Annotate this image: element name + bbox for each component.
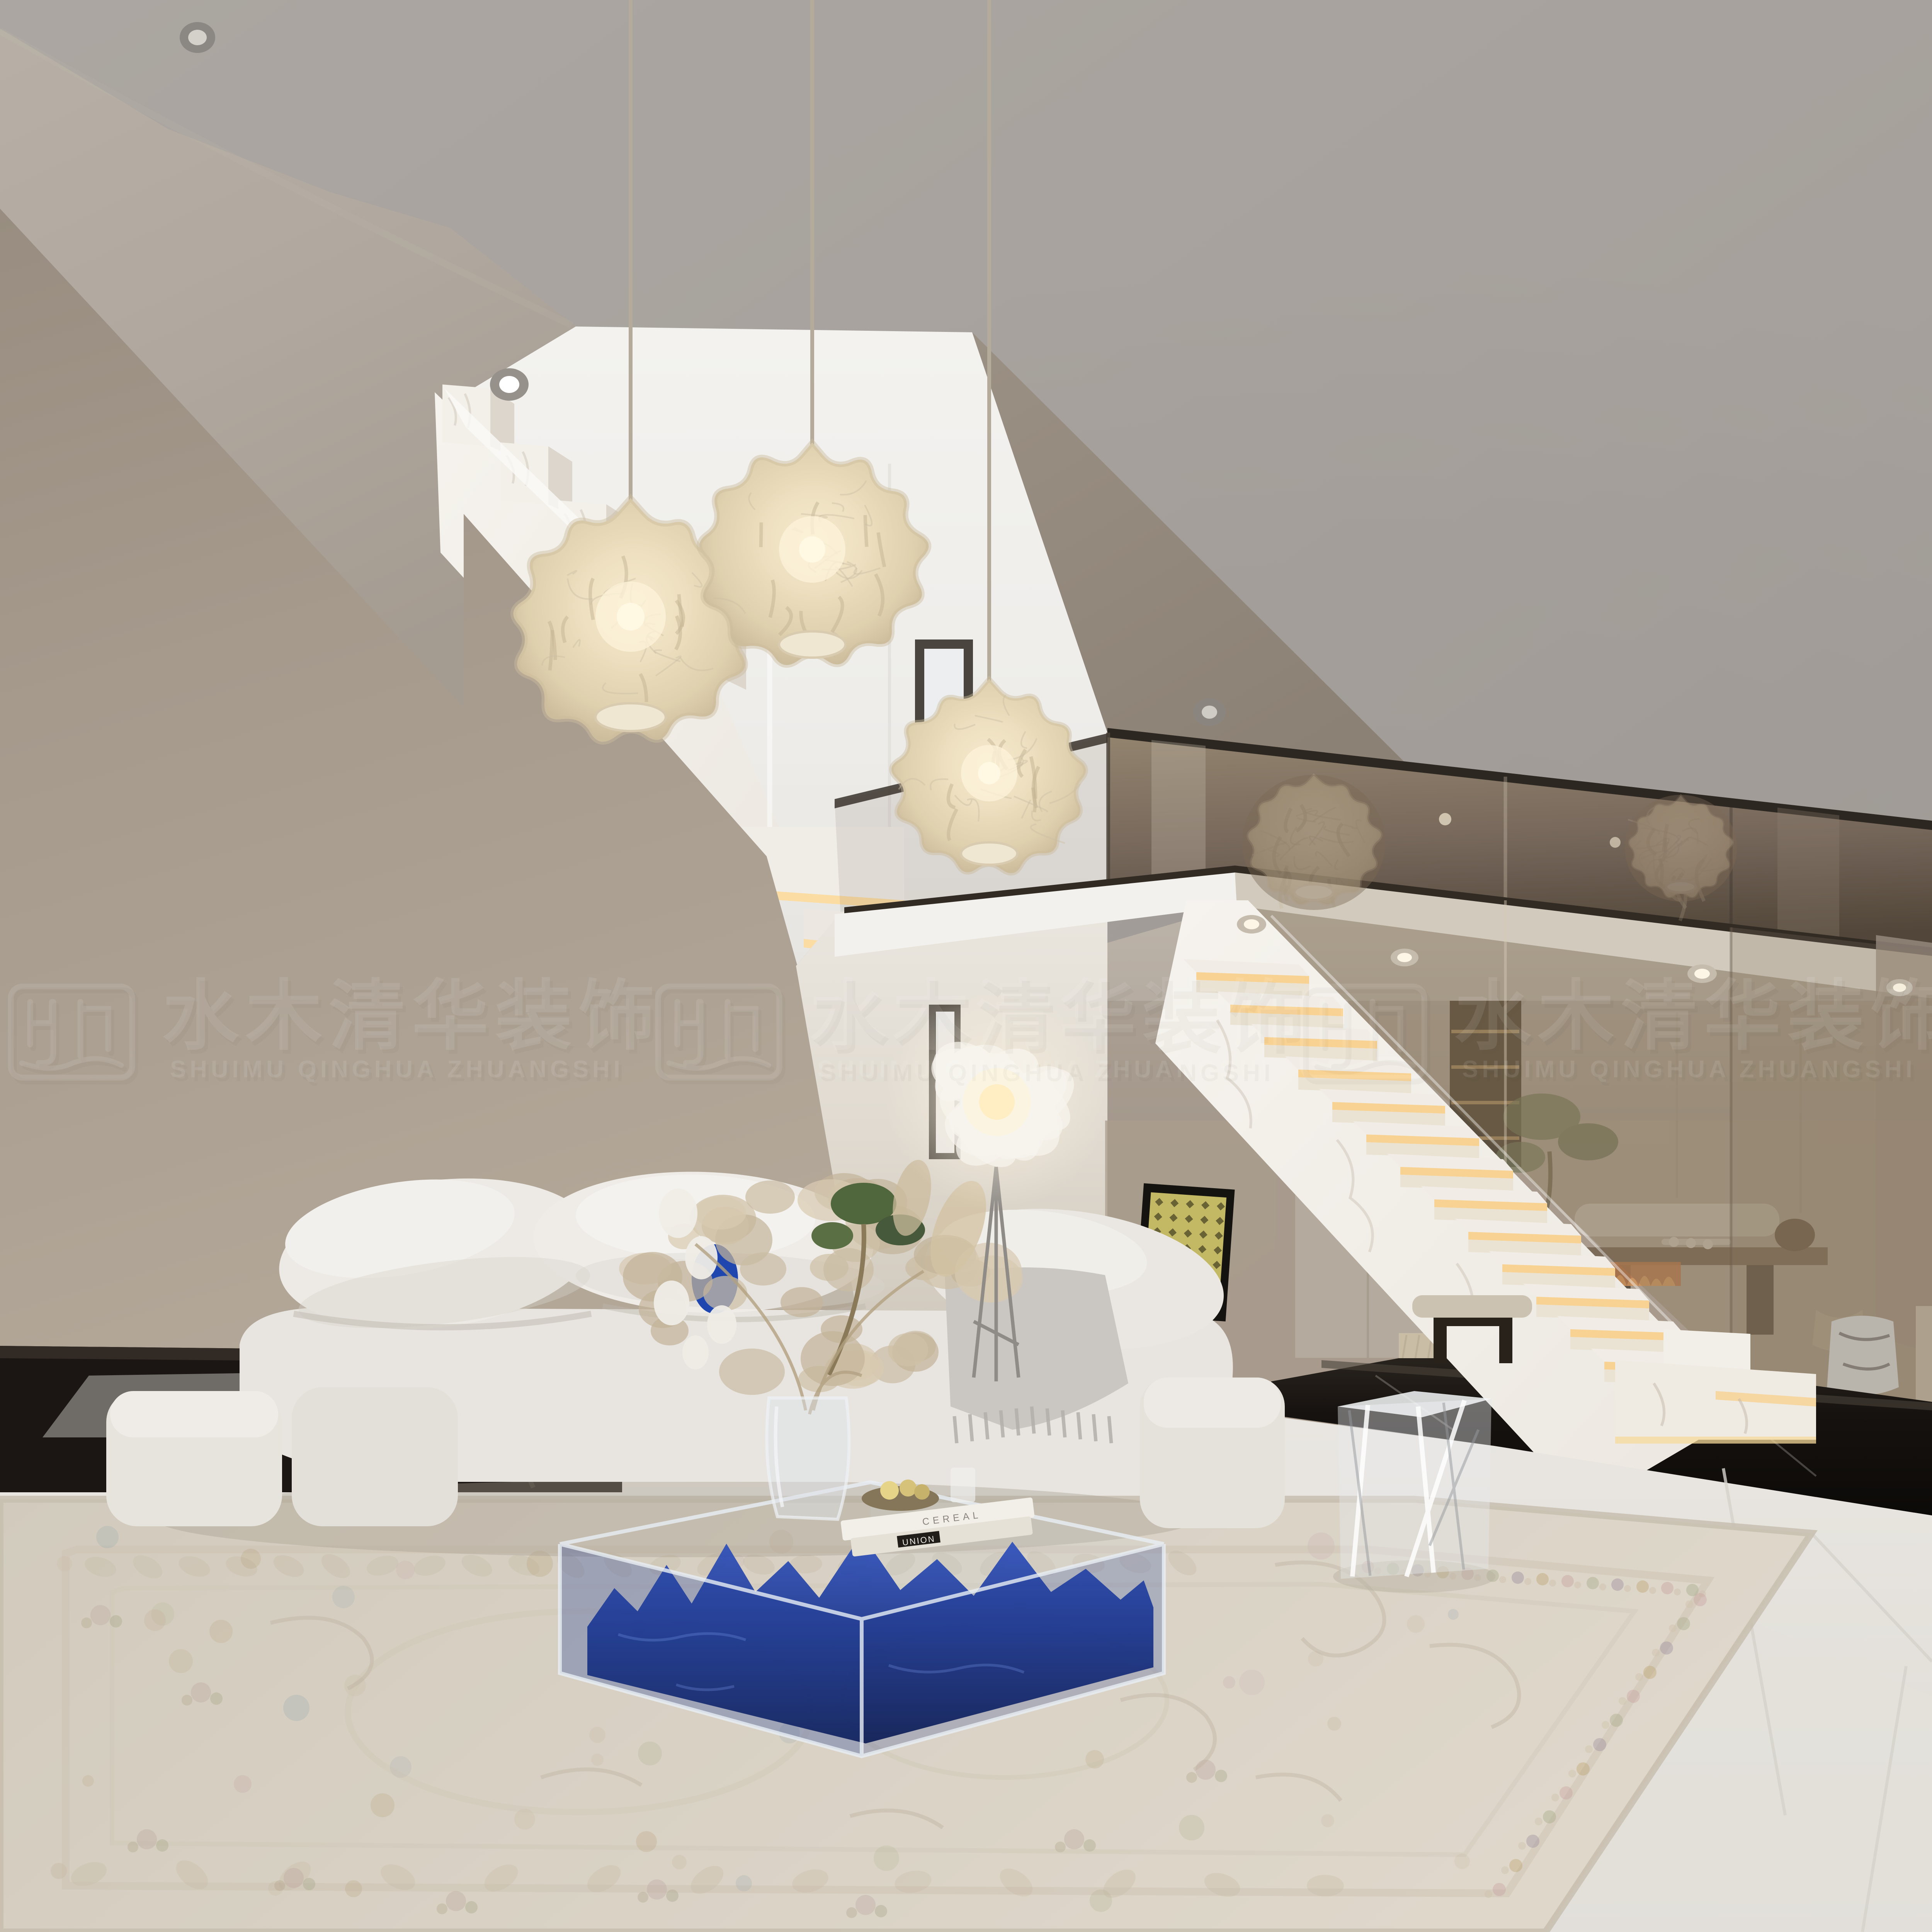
svg-text:水木清华装饰: 水木清华装饰	[1454, 973, 1932, 1059]
svg-text:SHUIMU QINGHUA ZHUANGSHI: SHUIMU QINGHUA ZHUANGSHI	[817, 1056, 1267, 1083]
svg-text:SHUIMU QINGHUA ZHUANGSHI: SHUIMU QINGHUA ZHUANGSHI	[170, 1056, 620, 1083]
svg-text:SHUIMU QINGHUA ZHUANGSHI: SHUIMU QINGHUA ZHUANGSHI	[1462, 1056, 1912, 1083]
